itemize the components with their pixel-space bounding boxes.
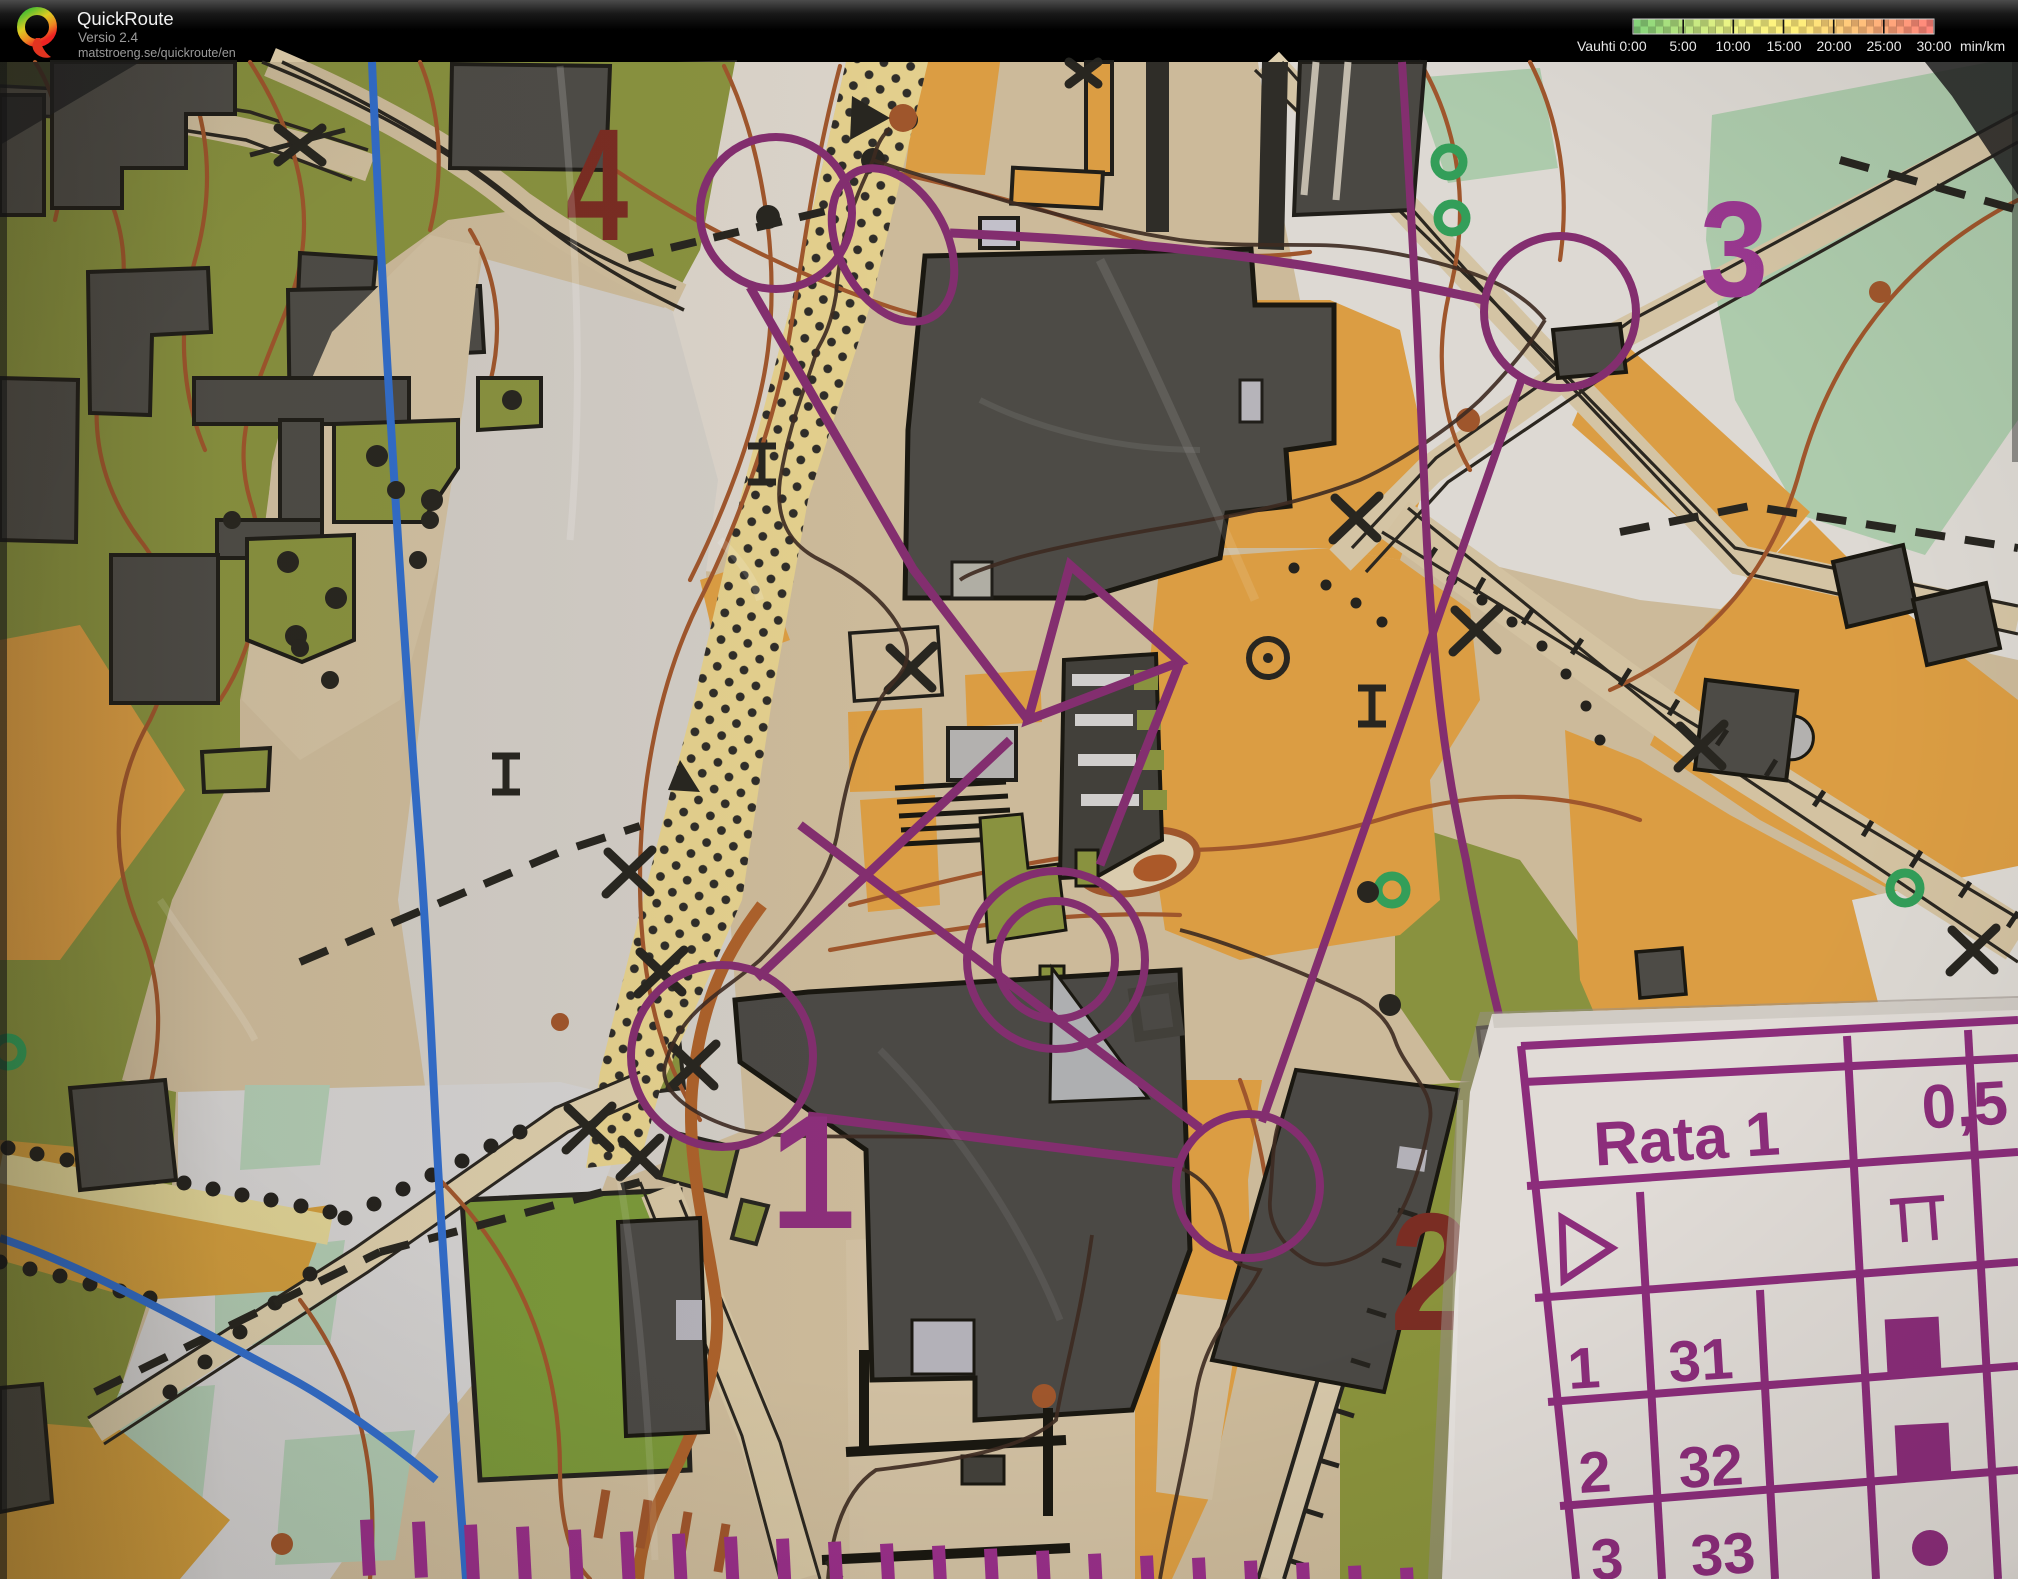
svg-text:matstroeng.se/quickroute/en: matstroeng.se/quickroute/en bbox=[78, 46, 236, 60]
svg-text:min/km: min/km bbox=[1960, 38, 2005, 54]
svg-text:15:00: 15:00 bbox=[1766, 38, 1801, 54]
svg-text:10:00: 10:00 bbox=[1715, 38, 1750, 54]
svg-text:30:00: 30:00 bbox=[1916, 38, 1951, 54]
svg-text:5:00: 5:00 bbox=[1669, 38, 1696, 54]
svg-text:QuickRoute: QuickRoute bbox=[77, 8, 174, 29]
svg-text:25:00: 25:00 bbox=[1866, 38, 1901, 54]
svg-text:Vauhti: Vauhti bbox=[1577, 38, 1616, 54]
svg-text:Versio 2.4: Versio 2.4 bbox=[78, 30, 139, 45]
svg-text:0:00: 0:00 bbox=[1619, 38, 1646, 54]
svg-text:20:00: 20:00 bbox=[1816, 38, 1851, 54]
